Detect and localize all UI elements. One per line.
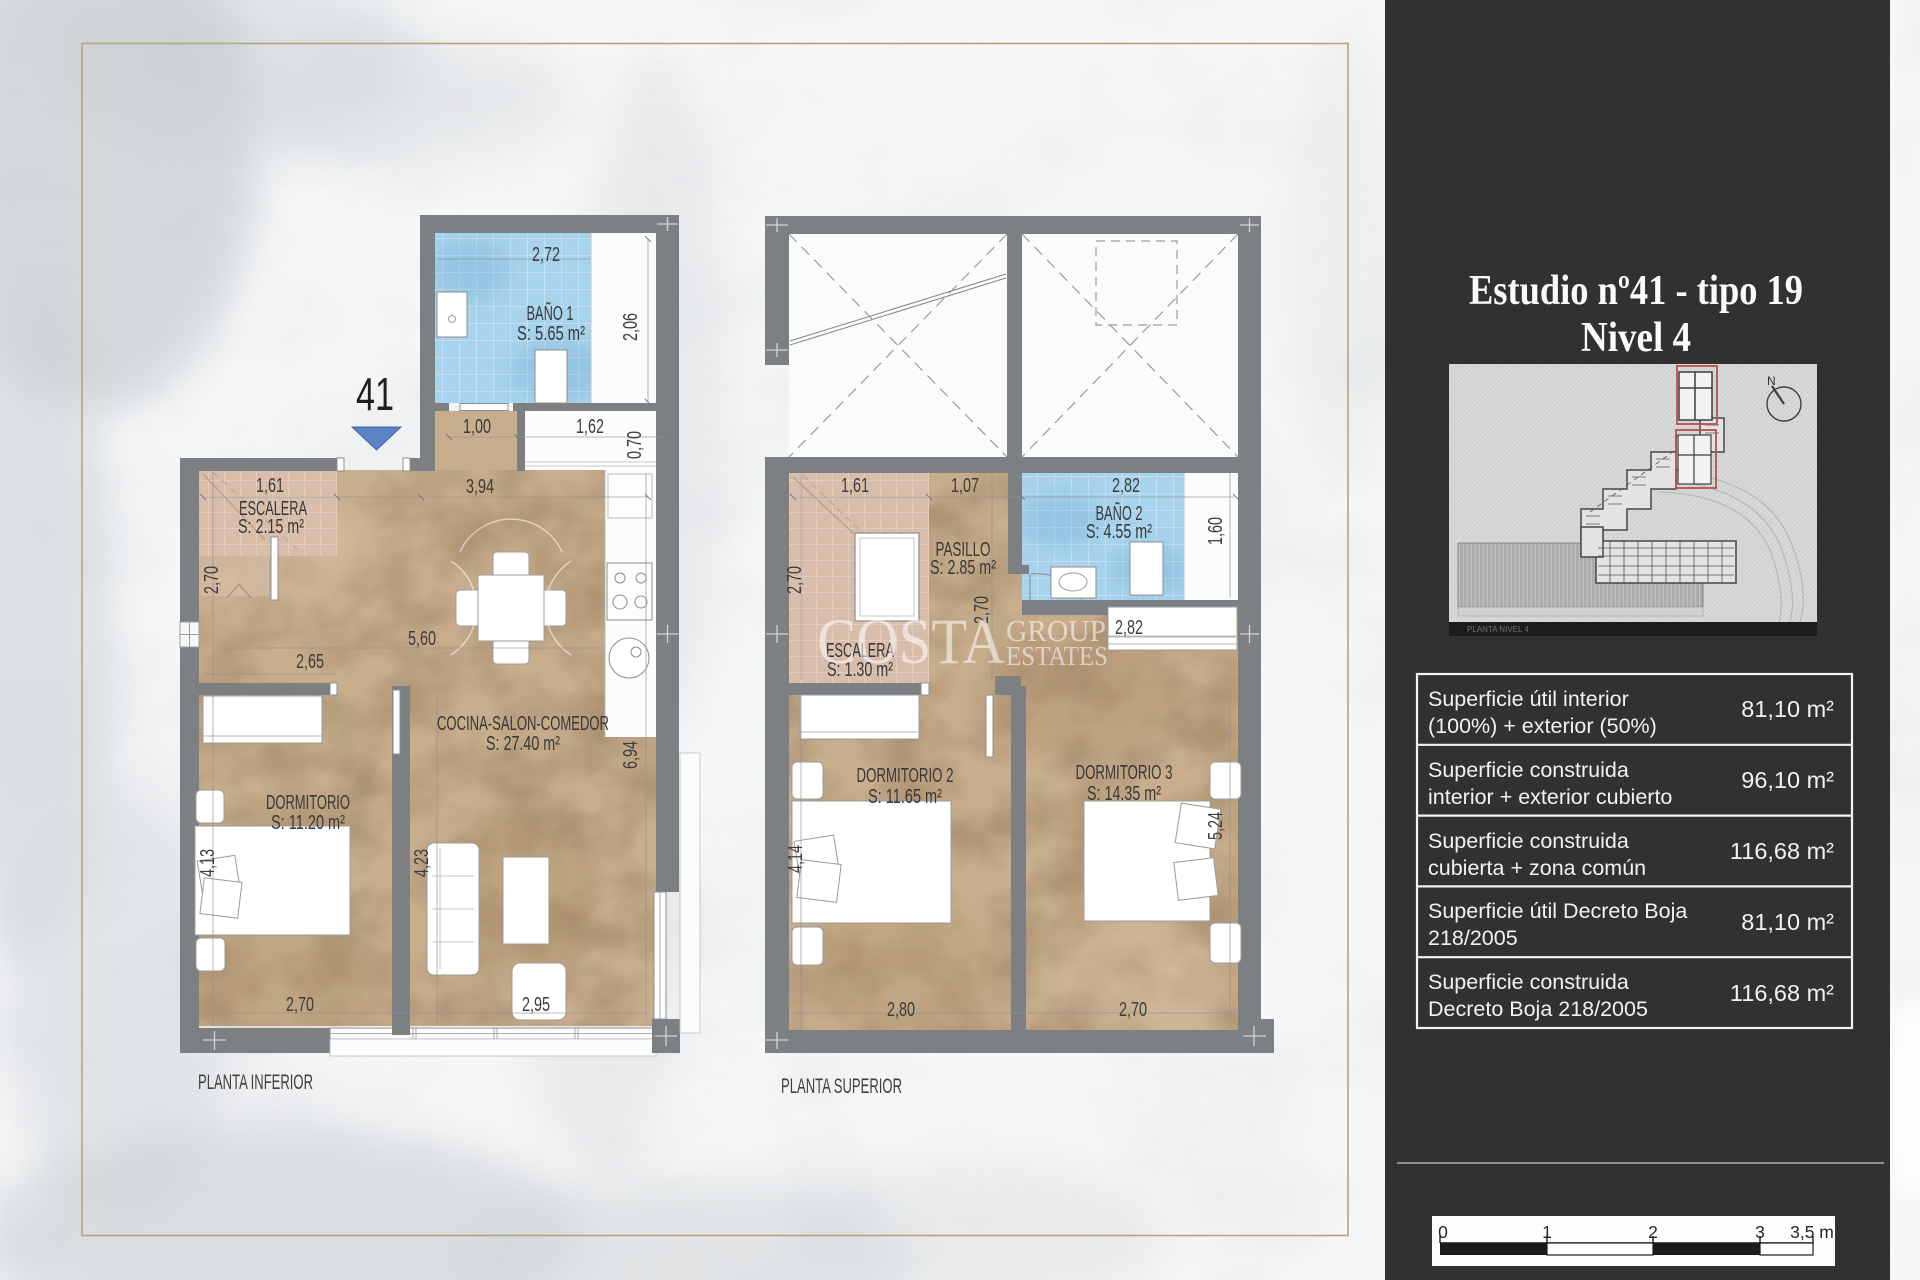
svg-text:PLANTA SUPERIOR: PLANTA SUPERIOR [781,1075,902,1098]
svg-text:(100%) + exterior (50%): (100%) + exterior (50%) [1428,714,1657,738]
svg-text:2,65: 2,65 [296,651,324,673]
svg-text:COCINA-SALON-COMEDOR: COCINA-SALON-COMEDOR [437,713,609,735]
svg-text:interior + exterior cubierto: interior + exterior cubierto [1428,785,1672,809]
svg-text:81,10 m²: 81,10 m² [1741,696,1834,722]
svg-text:1,07: 1,07 [951,475,979,497]
svg-text:S: 11.65 m²: S: 11.65 m² [868,786,942,808]
svg-text:41: 41 [356,368,394,420]
svg-text:DORMITORIO 3: DORMITORIO 3 [1076,762,1173,784]
svg-text:96,10 m²: 96,10 m² [1741,767,1834,793]
svg-text:2,72: 2,72 [532,244,560,266]
svg-text:2,82: 2,82 [1115,617,1143,639]
svg-text:0,70: 0,70 [624,431,646,459]
svg-text:S: 2.85 m²: S: 2.85 m² [930,557,996,579]
svg-text:S: 2.15 m²: S: 2.15 m² [238,516,304,538]
svg-text:6,94: 6,94 [620,741,642,769]
svg-text:cubierta + zona común: cubierta + zona común [1428,856,1646,880]
svg-text:116,68 m²: 116,68 m² [1730,838,1834,864]
svg-text:2,70: 2,70 [1119,999,1147,1021]
svg-text:Superficie construida: Superficie construida [1428,970,1629,994]
svg-text:Estudio nº41 - tipo 19: Estudio nº41 - tipo 19 [1469,268,1803,314]
svg-text:COSTA: COSTA [817,606,1005,678]
svg-text:2,70: 2,70 [201,566,223,594]
svg-text:Superficie útil interior: Superficie útil interior [1428,687,1629,711]
svg-text:218/2005: 218/2005 [1428,926,1518,950]
svg-text:S: 11.20 m²: S: 11.20 m² [271,812,345,834]
svg-text:Superficie construida: Superficie construida [1428,758,1629,782]
svg-text:1,00: 1,00 [463,416,491,438]
svg-text:S: 5.65 m²: S: 5.65 m² [517,323,585,345]
svg-text:1,61: 1,61 [841,475,869,497]
svg-text:4,23: 4,23 [411,849,433,877]
svg-text:DORMITORIO: DORMITORIO [266,792,350,814]
svg-text:DORMITORIO 2: DORMITORIO 2 [857,765,954,787]
svg-text:S: 14.35 m²: S: 14.35 m² [1087,783,1161,805]
svg-text:N: N [1767,374,1776,388]
svg-text:S: 4.55 m²: S: 4.55 m² [1086,521,1152,543]
svg-text:2,70: 2,70 [784,566,806,594]
svg-text:PLANTA INFERIOR: PLANTA INFERIOR [198,1071,313,1094]
svg-text:81,10 m²: 81,10 m² [1741,909,1834,935]
svg-text:2,06: 2,06 [620,313,642,341]
svg-text:PLANTA NIVEL 4: PLANTA NIVEL 4 [1467,625,1529,634]
svg-text:4,14: 4,14 [785,845,807,873]
svg-text:2,80: 2,80 [887,999,915,1021]
svg-text:1,62: 1,62 [576,416,604,438]
svg-text:S: 27.40 m²: S: 27.40 m² [486,733,560,755]
svg-text:Superficie construida: Superficie construida [1428,829,1629,853]
svg-text:4,13: 4,13 [197,849,219,877]
svg-text:2,70: 2,70 [286,994,314,1016]
svg-text:Decreto Boja 218/2005: Decreto Boja 218/2005 [1428,997,1648,1021]
svg-text:1,60: 1,60 [1205,517,1227,545]
svg-text:Nivel 4: Nivel 4 [1581,315,1691,361]
svg-text:5,24: 5,24 [1205,812,1227,840]
svg-text:3,94: 3,94 [466,476,494,498]
svg-text:116,68 m²: 116,68 m² [1730,980,1834,1006]
svg-text:3,5 m: 3,5 m [1790,1222,1834,1242]
svg-text:2,82: 2,82 [1112,475,1140,497]
svg-text:ESTATES: ESTATES [1006,641,1108,671]
svg-text:Superficie útil Decreto Boja: Superficie útil Decreto Boja [1428,899,1687,923]
svg-text:5,60: 5,60 [408,628,436,650]
svg-text:1,61: 1,61 [256,475,284,497]
svg-text:2,95: 2,95 [522,994,550,1016]
svg-text:BAÑO 1: BAÑO 1 [527,301,574,325]
